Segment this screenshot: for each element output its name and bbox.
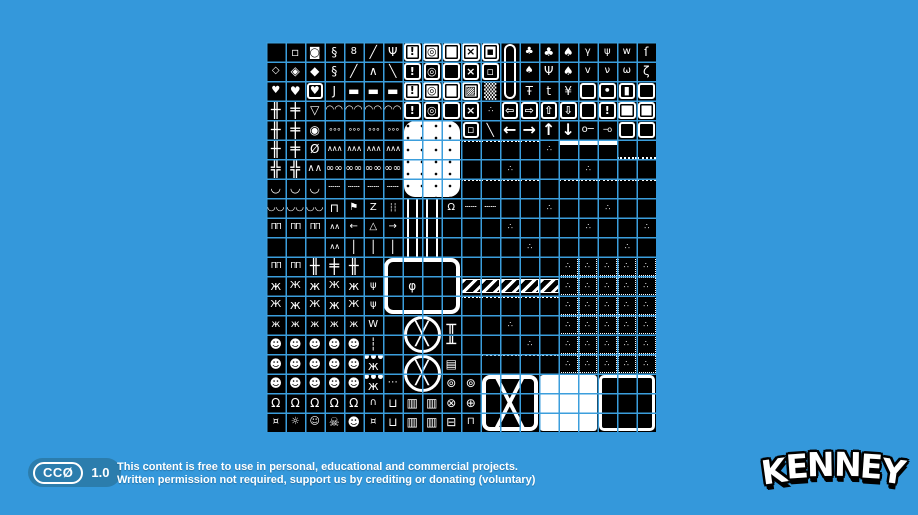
tile-r1-c12 [504,62,516,82]
tile-r13-c11 [481,296,501,316]
tile-r3-c18 [618,102,636,120]
tile-r3-c16 [580,102,597,119]
tile-r3-c1: ╪ [286,101,306,121]
tile-r12-c18: ∴ [618,277,637,296]
tile-r2-c5: ▬ [364,81,384,101]
tile-r9-c13 [520,218,540,238]
tile-r10-c14 [539,237,559,257]
tile-r12-c14 [539,279,559,293]
tile-r1-c9 [443,63,460,80]
tile-r3-c17: ! [599,102,616,119]
tile-r11-c9 [442,258,461,277]
tile-r9-c18 [617,218,637,238]
tile-r4-c2: ◉ [305,120,325,140]
tile-r9-c11 [481,218,501,238]
tile-r9-c17 [598,218,618,238]
black-square [599,375,656,432]
tile-r3-c15: ⇩ [560,102,577,119]
tile-r16-c15: ∴ [559,355,578,374]
tile-r2-c3: J [325,81,345,101]
tile-r3-c14: ⇧ [541,102,558,119]
tile-r15-c10 [461,335,481,355]
tile-r19-c4: ☻ [344,413,364,433]
tile-r0-c9 [443,43,461,61]
tile-r15-c19: ∴ [637,335,656,354]
tile-r12-c10 [461,279,481,293]
tile-r9-c3: ∧∧ [325,218,345,238]
tile-r13-c14 [539,296,559,316]
tile-r12-c16: ∴ [579,277,598,296]
tile-r19-c9: ⊟ [442,413,462,433]
tile-r6-c16: ∴ [578,159,598,179]
tile-r15-c12 [500,335,520,355]
tile-r4-c4: ∘∘∘ [344,120,364,140]
tile-r14-c1: ж [286,315,306,335]
tile-r12-c9 [442,276,461,296]
tile-r3-c6: ◠◠ [383,101,403,121]
tile-r9-c14 [539,218,559,238]
tile-r14-c12: ∴ [500,315,520,335]
logo-letter: N [807,444,834,483]
tile-r16-c5: ж [364,354,384,374]
tile-r19-c8: ▥ [422,413,442,433]
tile-r1-c18: ω [617,62,637,82]
tile-r19-c3: ☠ [325,413,345,433]
tile-r11-c17: ∴ [598,257,617,276]
tile-r19-c7: ▥ [403,413,423,433]
tile-r6-c19 [637,159,657,179]
logo-letter: N [834,444,861,483]
tile-r14-c19: ∴ [637,316,656,335]
tile-r18-c4: Ω [344,393,364,413]
tile-r11-c6 [384,258,403,277]
tile-r4-c12: ← [500,120,520,140]
tile-r10-c11 [481,237,501,257]
tile-r3-c7: ! [404,102,421,119]
tile-r10-c0 [266,237,286,257]
tile-r5-c4: ∧∧∧ [344,140,364,160]
tile-r2-c7: ! [404,82,422,100]
tile-r4-c3: ∘∘∘ [325,120,345,140]
tile-r14-c2: ж [305,315,325,335]
tile-r11-c13 [520,257,540,277]
tile-r1-c3: § [325,62,345,82]
tile-r12-c15: ∴ [559,277,578,296]
tile-r15-c13: ∴ [520,335,540,355]
tile-r16-c16: ∴ [579,355,598,374]
tile-r16-c9: ▤ [442,354,462,374]
tile-r7-c2: ◡ [305,179,325,199]
tile-r8-c3: ⊓ [325,198,345,218]
tile-r8-c15 [559,198,579,218]
tile-r13-c5: ψ [364,296,384,316]
tile-r9-c16: ∴ [578,218,598,238]
tile-r12-c0: ж [266,276,286,296]
tile-r13-c3: ж [325,296,345,316]
tile-r7-c18 [617,179,637,199]
tile-r12-c11 [481,279,501,293]
tile-r1-c1: ◈ [286,62,306,82]
tile-r0-c8: ◎ [423,43,441,61]
tile-r14-c17: ∴ [598,316,617,335]
tile-r9-c10 [461,218,481,238]
tile-r16-c17: ∴ [598,355,617,374]
tile-r16-c6 [383,354,403,374]
tile-r8-c18 [617,198,637,218]
tile-r0-c3: § [325,42,345,62]
tile-r9-c19: ∴ [637,218,657,238]
tile-r10-c16 [578,237,598,257]
tile-r4-c11: ╲ [481,120,501,140]
tile-r13-c19: ∴ [637,296,656,315]
tile-r7-c19 [637,179,657,199]
tile-r10-c13: ∴ [520,237,540,257]
tile-r2-c9 [443,82,461,100]
tile-r11-c18: ∴ [618,257,637,276]
tile-r11-c7 [403,258,423,277]
tile-r5-c19 [637,140,657,160]
tile-r8-c11: ┄┄ [481,198,501,218]
tile-r4-c18 [619,122,636,139]
tile-r8-c17: ∴ [598,198,618,218]
tile-r6-c15 [559,159,579,179]
tile-r7-c4: ┄┄ [344,179,364,199]
tile-r0-c7: ! [404,43,422,61]
tile-r7-c15 [559,179,579,199]
x-crate: ╳ [482,375,539,432]
tile-r13-c16: ∴ [579,296,598,315]
tile-r1-c19: ζ [637,62,657,82]
tile-r3-c12: ⇦ [502,102,519,119]
tile-r4-c10: ▫ [463,122,480,139]
tile-r10-c3: ∧∧ [325,237,345,257]
tile-r6-c3: ∞∞ [325,159,345,179]
tile-r7-c1: ◡ [286,179,306,199]
tile-r14-c6 [383,315,403,335]
tile-r4-c13: → [520,120,540,140]
tile-r9-c5: △ [364,218,384,238]
tile-r8-c10: ┄┄ [461,198,481,218]
tile-r8-c4: ⚑ [344,198,364,218]
license-text: This content is free to use in personal,… [117,461,535,487]
tile-r5-c15 [559,140,579,160]
tile-r0-c5: ╱ [364,42,384,62]
tile-r13-c1: ж [286,296,306,316]
tile-r5-c1: ╪ [286,140,306,160]
tile-r16-c0: ☻ [266,354,286,374]
tile-r0-c12 [504,44,516,62]
tile-r15-c2: ☻ [305,335,325,355]
tile-r6-c13 [520,159,540,179]
tile-r0-c0 [266,42,286,62]
tile-r4-c16: o─ [578,120,598,140]
tile-r0-c15: ♠ [559,42,579,62]
tile-r16-c11 [481,354,501,374]
tile-r10-c5: │ [364,237,384,257]
license-version: 1.0 [91,465,109,480]
tile-r14-c10 [461,315,481,335]
tile-r8-c13 [520,198,540,218]
tile-r1-c7: ! [404,63,421,80]
tile-r11-c8 [422,258,442,277]
tile-r6-c0: ╬ [266,159,286,179]
license-line-1: This content is free to use in personal,… [117,461,535,474]
tile-r2-c18: ▮ [619,83,636,100]
tile-r3-c2: ▽ [305,101,325,121]
tile-r9-c6: → [383,218,403,238]
tile-r10-c18: ∴ [617,237,637,257]
tile-r7-c17 [598,179,618,199]
tile-r11-c19: ∴ [637,257,656,276]
tile-r10-c15 [559,237,579,257]
tile-r6-c12: ∴ [500,159,520,179]
tile-r13-c12 [500,296,520,316]
cc0-license-badge: CCØ 1.0 [28,458,121,487]
tile-r13-c15: ∴ [559,296,578,315]
tile-r3-c10: × [463,102,480,119]
tile-r7-c14 [539,179,559,199]
tile-r18-c6: ⊔ [383,393,403,413]
tile-r9-c15 [559,218,579,238]
tile-r14-c3: ж [325,315,345,335]
tile-r16-c2: ☻ [305,354,325,374]
tile-r5-c2: Ø [305,140,325,160]
tile-r3-c3: ◠◠ [325,101,345,121]
tile-r2-c14: t [539,81,559,101]
tile-r2-c8: ◎ [423,82,441,100]
tile-r10-c17 [598,237,618,257]
tile-r15-c3: ☻ [325,335,345,355]
tile-r13-c2: Ж [305,296,325,316]
tile-r16-c13 [520,354,540,374]
tile-r7-c11 [481,179,501,199]
tile-r11-c15: ∴ [559,257,578,276]
tile-r2-c2: ♥ [307,83,324,100]
tile-r5-c5: ∧∧∧ [364,140,384,160]
tile-r18-c1: Ω [286,393,306,413]
tile-r16-c4: ☻ [344,354,364,374]
tile-r9-c9 [442,218,462,238]
tile-r12-c19: ∴ [637,277,656,296]
tile-r10-c2 [305,237,325,257]
tile-r4-c0: ╫ [266,120,286,140]
tile-r10-c4: │ [344,237,364,257]
tile-r1-c2: ◆ [305,62,325,82]
tile-r2-c4: ▬ [344,81,364,101]
tile-r5-c11 [481,140,501,160]
tile-r4-c5: ∘∘∘ [364,120,384,140]
tile-r15-c16: ∴ [579,335,598,354]
tile-r13-c9 [442,296,461,315]
tile-r13-c7 [403,296,423,315]
tile-r0-c6: Ψ [383,42,403,62]
tile-r9-c7 [407,218,419,238]
tile-r12-c13 [520,279,540,293]
tile-r2-c6: ▬ [383,81,403,101]
tile-r3-c9 [443,102,460,119]
tile-r2-c17: • [599,83,616,100]
tile-r13-c10 [461,296,481,316]
tile-r12-c4: ж [344,276,364,296]
tile-r3-c8: ◎ [424,102,441,119]
tile-r14-c18: ∴ [618,316,637,335]
tile-r17-c1: ☻ [286,374,306,394]
tile-r6-c18 [617,159,637,179]
tile-r8-c1: ◡◡ [286,198,306,218]
tile-r18-c7: ▥ [403,393,423,413]
tile-r17-c10: ⊚ [461,374,481,394]
tile-r1-c10: × [463,63,480,80]
tile-r12-c3: Ж [325,276,345,296]
tile-r8-c8 [426,198,438,218]
tile-r11-c12 [500,257,520,277]
tile-r18-c8: ▥ [422,393,442,413]
tile-r0-c16: γ [578,42,598,62]
tile-r14-c4: ж [344,315,364,335]
tile-r10-c10 [461,237,481,257]
tile-r0-c2: ◙ [305,42,325,62]
tile-r3-c13: ⇨ [521,102,538,119]
kenney-logo: KENNEY [768,443,898,493]
tile-r10-c1 [286,237,306,257]
tile-r16-c3: ☻ [325,354,345,374]
tile-r3-c19 [638,102,656,120]
tile-r18-c10: ⊕ [461,393,481,413]
tile-r2-c15: ¥ [559,81,579,101]
tile-r8-c19 [637,198,657,218]
tile-r8-c16 [578,198,598,218]
page-background: { "page": { "background_color": "#3498db… [0,0,918,515]
tile-r9-c12: ∴ [500,218,520,238]
tile-r17-c4: ☻ [344,374,364,394]
tile-r11-c16: ∴ [579,257,598,276]
tile-r19-c2: ☺ [305,413,325,433]
tile-r6-c11 [481,159,501,179]
tile-r1-c4: ╱ [344,62,364,82]
tile-r17-c9: ⊚ [442,374,462,394]
tile-r11-c5 [364,257,384,277]
tile-r14-c14 [539,315,559,335]
tile-r1-c14: Ψ [539,62,559,82]
tile-r6-c14 [539,159,559,179]
tile-r4-c17: ─o [598,120,618,140]
tile-r13-c13 [520,296,540,316]
tile-r15-c1: ☻ [286,335,306,355]
tile-r17-c0: ☻ [266,374,286,394]
tile-r5-c13 [520,140,540,160]
tile-r5-c10 [461,140,481,160]
tile-r19-c6: ⊔ [383,413,403,433]
tile-r11-c1: ΠΠ [286,257,306,277]
tile-r2-c0: ♥ [266,81,286,101]
tile-r15-c0: ☻ [266,335,286,355]
tile-r16-c14 [539,354,559,374]
fan-top: ╳ [404,316,441,353]
tile-r16-c1: ☻ [286,354,306,374]
tile-r2-c16 [580,83,597,100]
tile-r9-c4: ← [344,218,364,238]
tile-r8-c2: ◡◡ [305,198,325,218]
tile-r5-c3: ∧∧∧ [325,140,345,160]
tile-r1-c16: v [578,62,598,82]
tile-r13-c6 [384,296,403,315]
tile-r16-c10 [461,354,481,374]
tile-r7-c13 [520,179,540,199]
tile-r5-c6: ∧∧∧ [383,140,403,160]
tile-r3-c11: ∴ [481,101,501,121]
tile-r10-c7 [407,237,419,257]
tile-r9-c2: ΠΠ [305,218,325,238]
tile-r6-c17 [598,159,618,179]
tile-r19-c0: ¤ [266,413,286,433]
tile-r7-c16 [578,179,598,199]
tile-r18-c9: ⊗ [442,393,462,413]
tile-r5-c0: ╫ [266,140,286,160]
tile-r8-c0: ◡◡ [266,198,286,218]
tile-r0-c19: ſ [637,42,657,62]
tile-r15-c6 [383,335,403,355]
tile-r11-c10 [461,257,481,277]
tile-r14-c5: W [364,315,384,335]
tile-r10-c9 [442,237,462,257]
tile-r14-c15: ∴ [559,316,578,335]
tile-r18-c0: Ω [266,393,286,413]
tile-r10-c12 [500,237,520,257]
tile-r11-c4: ╫ [344,257,364,277]
cc0-icon: CCØ [33,462,83,484]
tile-r15-c5: ┆ [364,335,384,355]
tile-r4-c6: ∘∘∘ [383,120,403,140]
tile-r3-c5: ◠◠ [364,101,384,121]
tile-r14-c13 [520,315,540,335]
tile-r5-c14: ∴ [539,140,559,160]
tile-r13-c8 [422,296,442,315]
tile-r7-c10 [461,179,481,199]
tile-r1-c11: ▫ [482,63,499,80]
tile-r12-c17: ∴ [598,277,617,296]
tile-r2-c11: ▒ [481,81,501,101]
tile-r17-c3: ☻ [325,374,345,394]
tile-r6-c10 [461,159,481,179]
tile-r1-c0: ◇ [266,62,286,82]
tile-r12-c6 [384,276,403,296]
tile-r15-c9: ╨ [442,335,462,355]
tile-r15-c4: ☻ [344,335,364,355]
tile-r6-c5: ∞∞ [364,159,384,179]
tile-r0-c10: × [462,43,480,61]
tile-r12-c2: ж [305,276,325,296]
tile-r2-c19 [638,83,655,100]
tile-r12-c5: ψ [364,276,384,296]
tile-grid: ▫◙§8╱Ψ!◎×▪♣♣♠γψwſ◇◈◆§╱∧╲!◎×▫♠Ψ♠vνωζ♥♥♥J▬… [266,42,656,432]
tile-r13-c17: ∴ [598,296,617,315]
tile-r17-c5: ж [364,374,384,394]
tile-r1-c6: ╲ [383,62,403,82]
tile-r6-c4: ∞∞ [344,159,364,179]
tile-r0-c17: ψ [598,42,618,62]
tile-r15-c15: ∴ [559,335,578,354]
tile-r7-c5: ┄┄ [364,179,384,199]
logo-letter: Y [879,450,907,492]
tile-r14-c0: ж [266,315,286,335]
tile-r16-c18: ∴ [618,355,637,374]
tile-r16-c12 [500,354,520,374]
tile-r15-c14 [539,335,559,355]
white-blob [404,121,461,197]
license-line-2: Written permission not required, support… [117,474,535,487]
tile-r13-c18: ∴ [618,296,637,315]
tile-r11-c11 [481,257,501,277]
